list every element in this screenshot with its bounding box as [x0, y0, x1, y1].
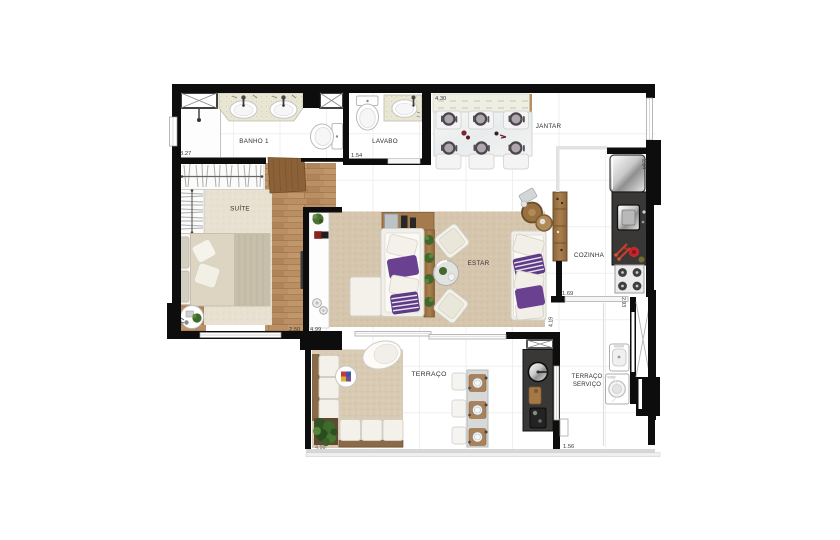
svg-text:JANTAR: JANTAR — [536, 123, 562, 130]
svg-text:COZINHA: COZINHA — [574, 252, 605, 259]
svg-text:SUÍTE: SUÍTE — [230, 204, 250, 213]
svg-text:TERRAÇO: TERRAÇO — [411, 371, 446, 378]
svg-text:BANHO 1: BANHO 1 — [239, 138, 269, 145]
svg-text:3.27: 3.27 — [180, 151, 191, 157]
svg-text:4.99: 4.99 — [315, 445, 326, 451]
svg-text:1.54: 1.54 — [351, 153, 363, 159]
svg-text:2.50: 2.50 — [289, 327, 300, 333]
svg-text:2.93: 2.93 — [620, 297, 626, 307]
svg-text:2.84: 2.84 — [641, 159, 647, 169]
svg-text:TERRAÇO: TERRAÇO — [572, 374, 603, 380]
svg-text:4.30: 4.30 — [435, 96, 446, 102]
svg-text:4.19: 4.19 — [549, 317, 555, 327]
svg-text:4.99: 4.99 — [310, 327, 321, 333]
svg-text:SERVIÇO: SERVIÇO — [573, 382, 601, 388]
svg-text:1.69: 1.69 — [562, 291, 573, 297]
svg-text:LAVABO: LAVABO — [372, 138, 398, 145]
svg-text:1.56: 1.56 — [563, 444, 574, 450]
svg-text:ESTAR: ESTAR — [468, 260, 490, 267]
